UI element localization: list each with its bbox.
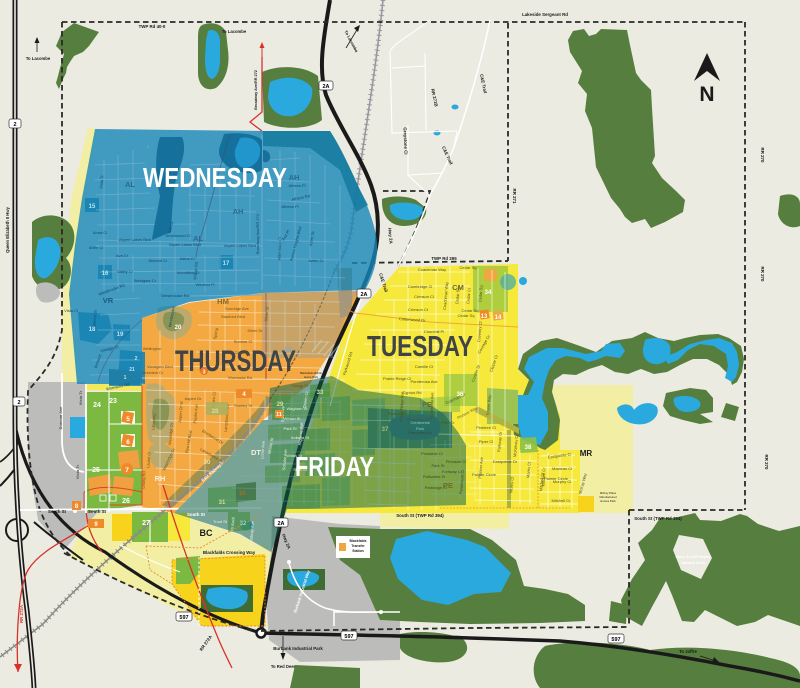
svg-text:Piper Cl: Piper Cl bbox=[479, 439, 493, 444]
svg-text:Gregg St: Gregg St bbox=[292, 383, 309, 388]
svg-text:23: 23 bbox=[109, 398, 117, 405]
svg-text:Adina Cl: Adina Cl bbox=[179, 256, 194, 261]
svg-text:597: 597 bbox=[344, 634, 353, 640]
svg-text:Westgate Cr: Westgate Cr bbox=[134, 278, 157, 283]
svg-text:Vista Tr: Vista Tr bbox=[78, 390, 83, 405]
svg-text:5: 5 bbox=[126, 416, 130, 423]
svg-text:BC: BC bbox=[200, 528, 213, 538]
svg-text:Pinewood Cl: Pinewood Cl bbox=[388, 411, 411, 416]
svg-text:Homes Park: Homes Park bbox=[600, 499, 616, 503]
svg-text:2A: 2A bbox=[360, 292, 367, 298]
svg-text:24: 24 bbox=[93, 402, 101, 409]
svg-text:Park: Park bbox=[416, 426, 424, 431]
svg-text:Cedar Sq: Cedar Sq bbox=[458, 313, 475, 318]
svg-text:13: 13 bbox=[481, 314, 488, 320]
svg-text:Aspen Lakes Blvd: Aspen Lakes Blvd bbox=[119, 237, 151, 242]
svg-text:Arlen Cl: Arlen Cl bbox=[89, 245, 103, 250]
svg-text:RH: RH bbox=[155, 474, 166, 483]
svg-text:2A: 2A bbox=[277, 521, 284, 527]
svg-text:Park St: Park St bbox=[283, 426, 297, 431]
svg-text:Trout St: Trout St bbox=[213, 519, 228, 524]
svg-text:Home Park: Home Park bbox=[304, 375, 319, 379]
svg-text:Womacks Rd: Womacks Rd bbox=[228, 375, 252, 380]
svg-text:Aspen Lakes Blvd: Aspen Lakes Blvd bbox=[224, 243, 256, 248]
svg-text:South St: South St bbox=[48, 509, 67, 514]
svg-text:14: 14 bbox=[495, 315, 502, 321]
svg-text:Ponderosa Ave: Ponderosa Ave bbox=[429, 392, 435, 420]
svg-text:Maclean Cl: Maclean Cl bbox=[552, 466, 572, 471]
svg-text:Aspen Lakes Blvd: Aspen Lakes Blvd bbox=[169, 242, 201, 247]
svg-text:3: 3 bbox=[202, 370, 205, 376]
svg-text:Palmer Circle: Palmer Circle bbox=[472, 472, 497, 477]
svg-text:Westview Cr: Westview Cr bbox=[141, 370, 164, 375]
svg-text:2: 2 bbox=[17, 400, 20, 406]
svg-text:TWP Rd 40-0: TWP Rd 40-0 bbox=[139, 24, 166, 29]
svg-text:34: 34 bbox=[485, 290, 492, 296]
svg-text:Palisades St: Palisades St bbox=[423, 474, 446, 479]
svg-text:2: 2 bbox=[13, 122, 16, 128]
svg-text:AH: AH bbox=[289, 173, 300, 182]
svg-text:Shull St: Shull St bbox=[293, 467, 308, 472]
svg-text:WEDNESDAY: WEDNESDAY bbox=[143, 162, 287, 193]
svg-text:RR 270: RR 270 bbox=[760, 267, 765, 282]
svg-text:7: 7 bbox=[125, 467, 129, 474]
svg-text:Coachman Way: Coachman Way bbox=[418, 267, 446, 272]
svg-text:Station: Station bbox=[352, 549, 364, 553]
svg-text:RR 272A: RR 272A bbox=[19, 604, 24, 623]
svg-text:To Lacombe: To Lacombe bbox=[26, 56, 51, 61]
svg-text:Westglen Blvd: Westglen Blvd bbox=[147, 364, 173, 369]
svg-text:South St (TWP Rd 394): South St (TWP Rd 394) bbox=[396, 513, 444, 518]
svg-text:15: 15 bbox=[89, 204, 96, 210]
svg-text:Winks St: Winks St bbox=[286, 453, 303, 458]
svg-text:Blackfalds: Blackfalds bbox=[350, 539, 367, 543]
svg-text:Churchill Pl: Churchill Pl bbox=[424, 329, 444, 334]
svg-text:25: 25 bbox=[92, 467, 100, 474]
svg-text:36: 36 bbox=[457, 392, 464, 398]
svg-text:26: 26 bbox=[122, 498, 130, 505]
svg-text:Broadway Ave/RR 272: Broadway Ave/RR 272 bbox=[254, 70, 258, 110]
svg-text:Mary & Cliff Soper: Mary & Cliff Soper bbox=[676, 554, 711, 559]
svg-text:Pinetree Cl: Pinetree Cl bbox=[476, 425, 496, 430]
svg-text:TWP Rd 395: TWP Rd 395 bbox=[431, 256, 457, 261]
svg-text:HM: HM bbox=[217, 297, 229, 306]
svg-text:Pinnacle Cl: Pinnacle Cl bbox=[446, 459, 466, 464]
svg-text:31: 31 bbox=[219, 500, 226, 506]
svg-text:Crimson Cl: Crimson Cl bbox=[414, 294, 434, 299]
svg-text:30: 30 bbox=[204, 460, 211, 466]
svg-text:Sunridge Ave: Sunridge Ave bbox=[225, 306, 249, 311]
svg-text:Anna Cl: Anna Cl bbox=[93, 230, 107, 235]
svg-text:6: 6 bbox=[126, 439, 130, 446]
svg-text:Natural Area: Natural Area bbox=[681, 560, 705, 565]
svg-text:Vista Cl: Vista Cl bbox=[64, 308, 78, 313]
svg-text:597: 597 bbox=[179, 615, 188, 621]
svg-text:Prairie Ridge Cl: Prairie Ridge Cl bbox=[383, 376, 411, 381]
svg-text:MR: MR bbox=[580, 449, 593, 458]
svg-text:AL: AL bbox=[125, 180, 135, 189]
svg-text:Queen Elizabeth II Hwy: Queen Elizabeth II Hwy bbox=[5, 206, 10, 253]
svg-text:Cambridge Cl: Cambridge Cl bbox=[408, 284, 433, 289]
svg-text:To Red Deer: To Red Deer bbox=[271, 664, 296, 669]
svg-text:18: 18 bbox=[89, 327, 96, 333]
svg-text:2A: 2A bbox=[322, 84, 329, 90]
svg-text:37: 37 bbox=[382, 427, 389, 433]
svg-text:To Lacombe: To Lacombe bbox=[222, 29, 247, 34]
svg-text:Valley Cr: Valley Cr bbox=[117, 269, 134, 274]
svg-text:Cedar Sq: Cedar Sq bbox=[460, 265, 477, 270]
svg-text:Crimson Ct: Crimson Ct bbox=[408, 307, 429, 312]
svg-text:AH: AH bbox=[233, 207, 244, 216]
svg-text:To Joffre: To Joffre bbox=[679, 649, 697, 654]
svg-text:Aztec Cr: Aztec Cr bbox=[308, 258, 324, 263]
svg-text:Transfer: Transfer bbox=[351, 544, 365, 548]
svg-text:10: 10 bbox=[239, 491, 246, 497]
svg-text:RR 270: RR 270 bbox=[764, 455, 769, 470]
svg-text:29: 29 bbox=[277, 402, 284, 408]
svg-text:21: 21 bbox=[129, 367, 135, 373]
svg-text:16: 16 bbox=[102, 271, 109, 277]
svg-text:38: 38 bbox=[525, 445, 532, 451]
svg-text:Wilson St: Wilson St bbox=[284, 416, 302, 421]
svg-text:Greystone Cl: Greystone Cl bbox=[403, 127, 409, 154]
svg-text:Lakeside Sergeant Rd: Lakeside Sergeant Rd bbox=[522, 12, 568, 17]
svg-text:17: 17 bbox=[223, 261, 230, 267]
svg-text:2: 2 bbox=[135, 356, 138, 362]
svg-text:Burbank Industrial Park: Burbank Industrial Park bbox=[273, 646, 323, 651]
svg-text:Stanford Blvd: Stanford Blvd bbox=[221, 314, 245, 319]
svg-text:Silver Dr: Silver Dr bbox=[247, 328, 263, 333]
svg-text:TUESDAY: TUESDAY bbox=[367, 331, 473, 363]
svg-text:32: 32 bbox=[240, 521, 247, 527]
svg-text:Camille Ct: Camille Ct bbox=[415, 364, 434, 369]
svg-text:Westbrooke Rd: Westbrooke Rd bbox=[161, 293, 189, 298]
svg-text:Centennial: Centennial bbox=[410, 420, 429, 425]
svg-text:Wellington: Wellington bbox=[143, 346, 162, 351]
svg-text:Aldermoor Cl: Aldermoor Cl bbox=[277, 237, 283, 261]
svg-text:Eastpointe Dr: Eastpointe Dr bbox=[493, 459, 518, 464]
svg-text:Ponderosa Ave: Ponderosa Ave bbox=[410, 379, 438, 384]
svg-text:Palmer Circle: Palmer Circle bbox=[544, 476, 569, 481]
svg-text:Silver Dr: Silver Dr bbox=[234, 350, 250, 355]
svg-text:12: 12 bbox=[284, 347, 292, 354]
svg-text:19: 19 bbox=[117, 332, 124, 338]
svg-text:597: 597 bbox=[611, 637, 620, 643]
svg-text:Blackfalds Crossing Way: Blackfalds Crossing Way bbox=[203, 550, 256, 555]
svg-text:South St: South St bbox=[187, 512, 206, 517]
svg-text:1: 1 bbox=[124, 375, 127, 381]
svg-text:Athens Pl: Athens Pl bbox=[281, 204, 298, 209]
svg-text:Winston Pl: Winston Pl bbox=[195, 282, 214, 287]
svg-text:Stanley St: Stanley St bbox=[234, 403, 253, 408]
svg-text:Cyprus Rd: Cyprus Rd bbox=[403, 390, 422, 395]
svg-text:VR: VR bbox=[103, 296, 114, 305]
svg-text:Athens Pl: Athens Pl bbox=[288, 183, 305, 188]
svg-text:27: 27 bbox=[142, 520, 150, 527]
svg-text:South St (TWP Rd 394): South St (TWP Rd 394) bbox=[634, 516, 682, 521]
svg-text:Aspen Dr: Aspen Dr bbox=[185, 396, 202, 401]
svg-text:Park St: Park St bbox=[431, 463, 445, 468]
svg-text:Almond Cr: Almond Cr bbox=[149, 258, 169, 263]
svg-text:Ava Cr: Ava Cr bbox=[116, 253, 129, 258]
svg-text:33: 33 bbox=[317, 390, 324, 396]
svg-text:20: 20 bbox=[175, 325, 182, 331]
svg-text:Vista Tr: Vista Tr bbox=[75, 464, 80, 479]
svg-text:Sunrise Cl: Sunrise Cl bbox=[234, 339, 253, 344]
svg-text:Pondside Cr: Pondside Cr bbox=[421, 451, 444, 456]
svg-text:11: 11 bbox=[276, 412, 282, 418]
svg-text:Duncan Ave: Duncan Ave bbox=[58, 406, 63, 430]
svg-text:Leung Rd: Leung Rd bbox=[141, 471, 147, 489]
svg-text:RR 270: RR 270 bbox=[760, 148, 765, 163]
svg-text:RR 271: RR 271 bbox=[512, 189, 517, 204]
svg-text:Pine Cr: Pine Cr bbox=[441, 420, 455, 425]
svg-text:N: N bbox=[699, 83, 714, 106]
svg-text:Parkridge Cr: Parkridge Cr bbox=[425, 485, 448, 490]
svg-text:Broadway Ave/RR 272: Broadway Ave/RR 272 bbox=[255, 213, 260, 254]
svg-text:Mitchell Cr: Mitchell Cr bbox=[552, 498, 572, 503]
svg-text:28: 28 bbox=[212, 409, 219, 415]
svg-text:South St: South St bbox=[88, 509, 107, 514]
